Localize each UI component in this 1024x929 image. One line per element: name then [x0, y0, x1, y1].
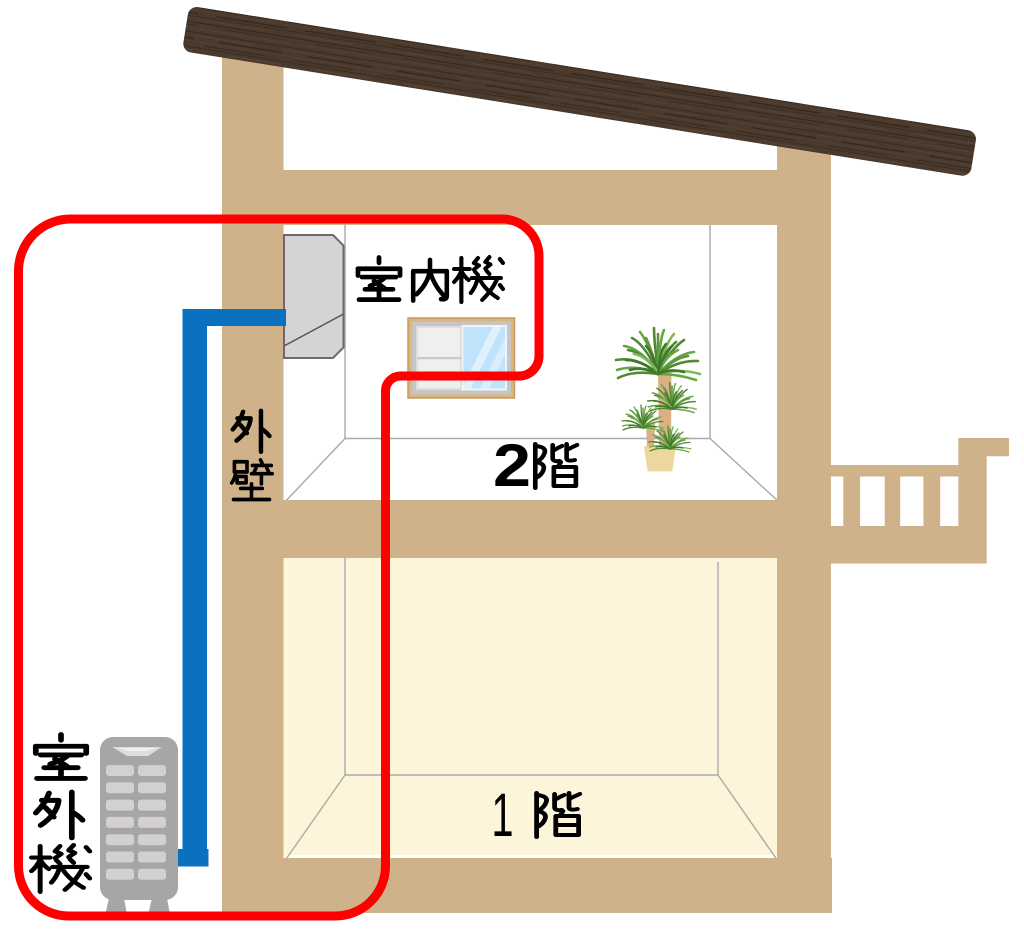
svg-text:1: 1: [492, 781, 514, 849]
svg-text:2: 2: [493, 432, 531, 499]
